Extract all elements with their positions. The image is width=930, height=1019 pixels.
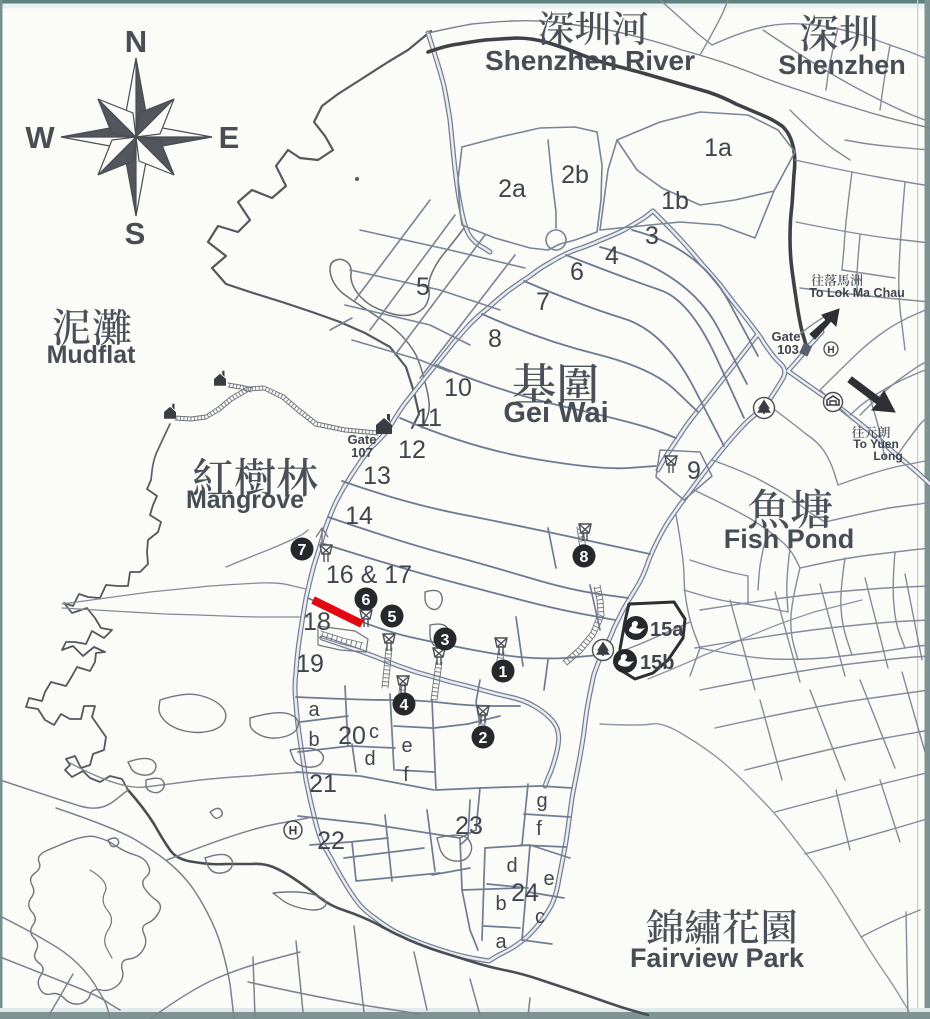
svg-text:18: 18 <box>303 608 331 636</box>
svg-text:12: 12 <box>398 436 426 464</box>
svg-text:24: 24 <box>511 879 539 907</box>
svg-text:f: f <box>403 764 409 786</box>
svg-text:19: 19 <box>296 650 324 678</box>
svg-text:b: b <box>308 729 319 751</box>
svg-text:23: 23 <box>455 812 483 840</box>
svg-text:13: 13 <box>363 462 391 490</box>
svg-text:To Lok Ma Chau: To Lok Ma Chau <box>809 286 905 300</box>
svg-text:10: 10 <box>444 374 472 402</box>
svg-text:Fish Pond: Fish Pond <box>724 524 855 554</box>
svg-text:Mudflat: Mudflat <box>47 341 137 369</box>
svg-text:103: 103 <box>777 342 799 357</box>
svg-text:6: 6 <box>570 258 584 286</box>
svg-text:1a: 1a <box>704 134 732 162</box>
svg-text:d: d <box>364 748 375 770</box>
svg-text:3: 3 <box>441 632 450 649</box>
svg-text:a: a <box>308 699 320 721</box>
svg-text:9: 9 <box>687 457 701 485</box>
svg-text:20: 20 <box>338 722 366 750</box>
svg-text:2a: 2a <box>498 175 526 203</box>
svg-text:b: b <box>495 893 506 915</box>
svg-text:Shenzhen River: Shenzhen River <box>485 45 695 76</box>
svg-text:2b: 2b <box>561 161 589 189</box>
svg-text:11: 11 <box>416 404 442 432</box>
svg-text:H: H <box>827 345 834 356</box>
svg-text:f: f <box>536 818 542 840</box>
svg-text:4: 4 <box>605 242 619 270</box>
svg-text:8: 8 <box>580 549 589 566</box>
svg-text:Shenzhen: Shenzhen <box>778 50 906 80</box>
svg-text:107: 107 <box>351 445 373 460</box>
svg-text:E: E <box>219 120 240 155</box>
svg-text:6: 6 <box>362 592 371 609</box>
svg-text:e: e <box>401 735 412 757</box>
svg-text:22: 22 <box>317 827 345 855</box>
svg-text:d: d <box>506 855 517 877</box>
svg-text:8: 8 <box>488 325 502 353</box>
svg-text:g: g <box>536 790 547 812</box>
svg-text:5: 5 <box>388 609 397 626</box>
svg-text:4: 4 <box>400 697 409 714</box>
svg-text:Gei Wai: Gei Wai <box>503 397 608 429</box>
svg-text:S: S <box>125 216 146 251</box>
svg-text:c: c <box>535 906 545 928</box>
svg-text:7: 7 <box>536 288 550 316</box>
svg-text:3: 3 <box>645 222 659 250</box>
svg-text:5: 5 <box>416 273 430 301</box>
svg-text:15a: 15a <box>650 619 684 641</box>
svg-text:Long: Long <box>873 449 902 463</box>
svg-text:15b: 15b <box>640 652 674 674</box>
svg-text:Mangrove: Mangrove <box>186 486 304 514</box>
svg-text:a: a <box>495 931 507 953</box>
svg-text:1: 1 <box>499 664 508 681</box>
svg-text:2: 2 <box>479 730 488 747</box>
svg-text:Fairview Park: Fairview Park <box>630 943 805 973</box>
svg-text:21: 21 <box>309 770 337 798</box>
svg-text:1b: 1b <box>661 187 689 215</box>
svg-text:14: 14 <box>345 502 373 530</box>
svg-text:c: c <box>369 721 379 743</box>
svg-text:N: N <box>125 24 147 59</box>
svg-text:e: e <box>543 868 554 890</box>
svg-text:W: W <box>25 120 55 155</box>
svg-text:7: 7 <box>298 542 307 559</box>
svg-text:16 & 17: 16 & 17 <box>326 561 412 589</box>
svg-text:H: H <box>289 824 298 838</box>
